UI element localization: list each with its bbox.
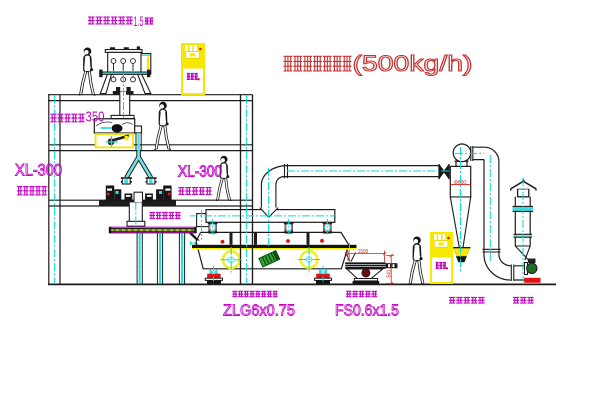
svg-text:XL-300: XL-300 <box>178 164 222 181</box>
svg-text:FS0.6x1.5: FS0.6x1.5 <box>335 303 399 320</box>
svg-text:ZLG6x0.75: ZLG6x0.75 <box>223 303 295 320</box>
svg-text:1.5: 1.5 <box>134 13 144 29</box>
svg-text:(500kg/h): (500kg/h) <box>353 51 473 76</box>
svg-text:1500: 1500 <box>358 249 369 255</box>
svg-text:350: 350 <box>86 109 105 126</box>
svg-text:541: 541 <box>386 269 392 277</box>
svg-text:XL-300: XL-300 <box>15 161 62 180</box>
svg-text:Φ600: Φ600 <box>454 180 466 186</box>
